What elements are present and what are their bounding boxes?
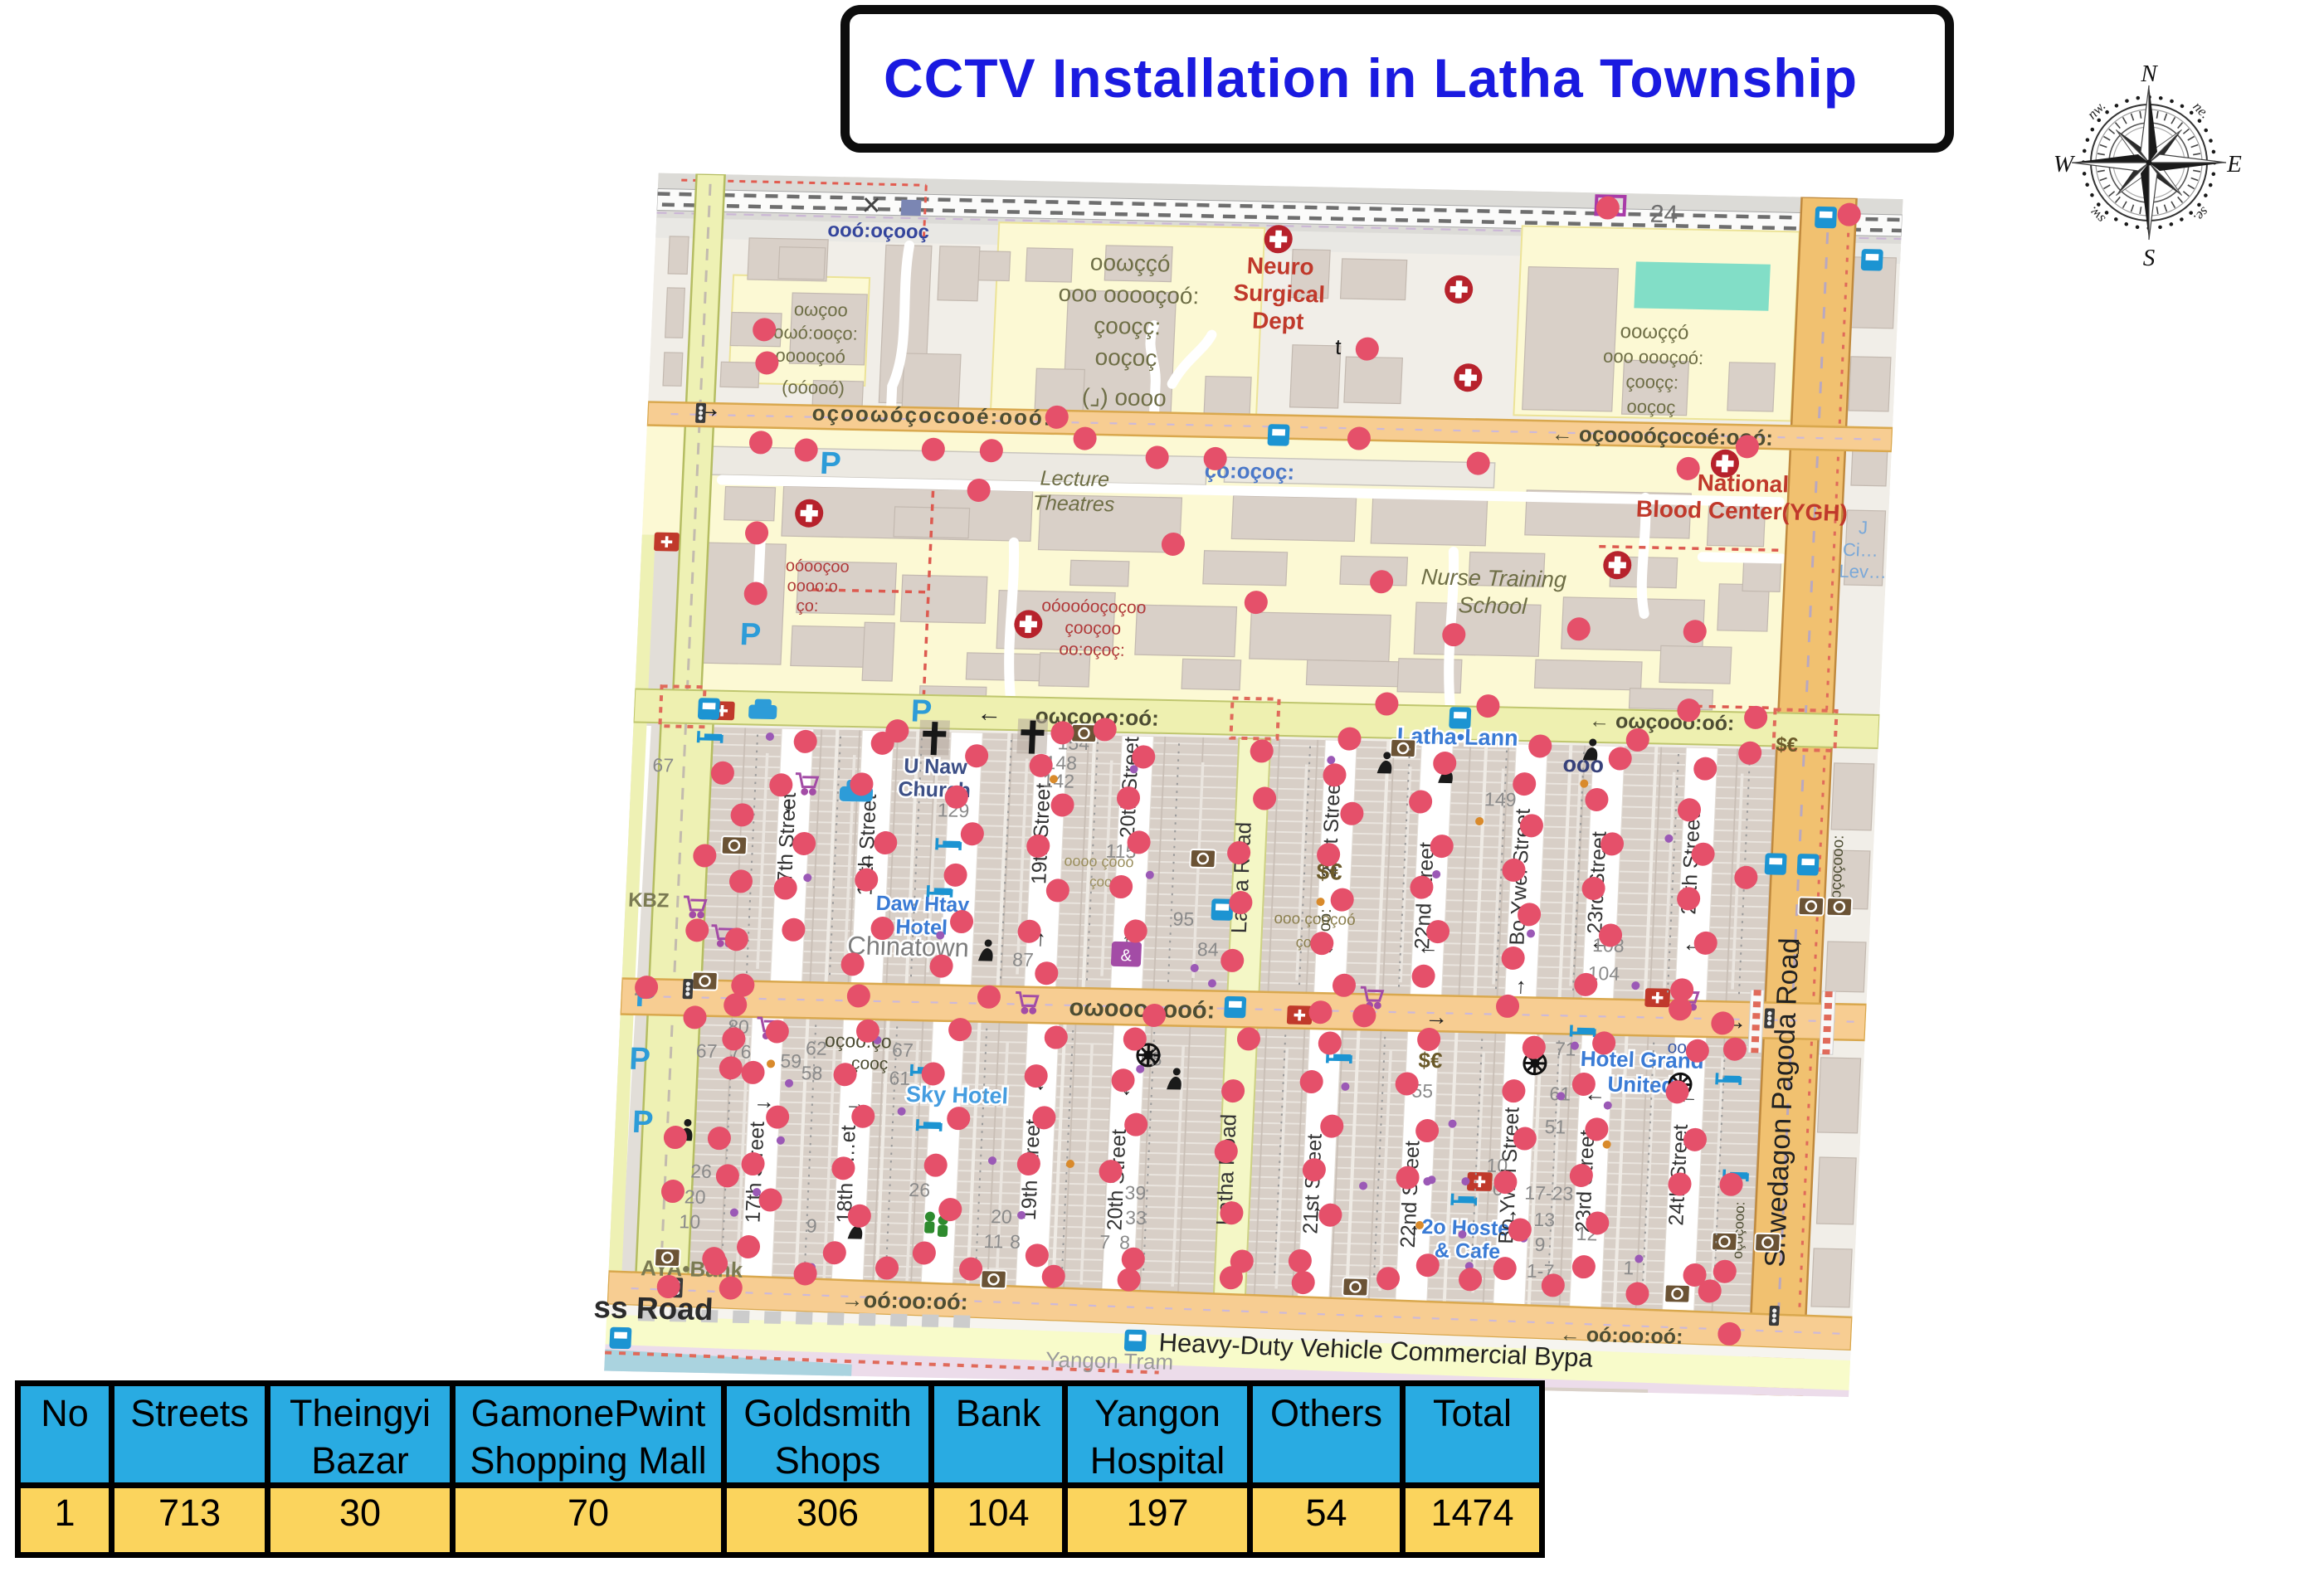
svg-text:39: 39	[1124, 1181, 1147, 1204]
svg-text:Theatres: Theatres	[1032, 491, 1115, 516]
svg-text:J: J	[1859, 517, 1868, 538]
svg-text:National: National	[1697, 470, 1790, 497]
svg-text:20: 20	[991, 1205, 1013, 1228]
svg-text:67: 67	[892, 1039, 914, 1061]
svg-text:çοοç: çοοç	[850, 1054, 888, 1073]
svg-text:8: 8	[1010, 1231, 1021, 1253]
svg-text:$€: $€	[1776, 733, 1799, 757]
svg-text:οωçοο: οωçοο	[793, 299, 848, 320]
svg-text:çοοçç:: çοοçç:	[1094, 313, 1162, 340]
svg-text:W: W	[2054, 151, 2076, 178]
svg-text:School: School	[1458, 592, 1528, 619]
svg-text:61: 61	[889, 1067, 911, 1089]
svg-text:33: 33	[1125, 1207, 1147, 1229]
svg-text:&: &	[1120, 947, 1133, 965]
svg-text:10: 10	[679, 1210, 701, 1233]
svg-text:S: S	[2143, 245, 2156, 271]
svg-text:Lecture: Lecture	[1040, 467, 1110, 492]
svg-text:οο:οçοç:: οο:οçοç:	[1059, 640, 1125, 660]
svg-text:United: United	[1607, 1072, 1675, 1098]
svg-text:οοο οοοçοó:: οοο οοοçοó:	[1603, 346, 1704, 369]
svg-text:19th Street: 19th Street	[1027, 782, 1055, 884]
svg-text:20: 20	[684, 1185, 706, 1208]
svg-text:62: 62	[806, 1037, 828, 1059]
svg-text:67: 67	[652, 754, 675, 776]
svg-text:çοοçç:: çοοçç:	[1625, 371, 1679, 392]
svg-text:95: 95	[1172, 908, 1195, 930]
svg-text:sw.: sw.	[2085, 203, 2108, 226]
svg-text:←: ←	[977, 699, 1002, 728]
svg-text:Neuro: Neuro	[1246, 253, 1314, 280]
svg-text:Sky Hotel: Sky Hotel	[905, 1082, 1008, 1109]
svg-text:11: 11	[983, 1230, 1004, 1252]
svg-text:58: 58	[801, 1062, 823, 1084]
svg-text:οοçοç: οοçοç	[1626, 396, 1676, 417]
svg-text:(οóοοó): (οóοοó)	[782, 377, 845, 399]
svg-text:13: 13	[1533, 1209, 1556, 1231]
svg-text:24: 24	[1649, 201, 1678, 229]
svg-text:→: →	[1425, 1004, 1449, 1030]
svg-text:→οó:οο:οó:: →οó:οο:οó:	[840, 1287, 968, 1314]
svg-text:26: 26	[909, 1179, 931, 1201]
svg-text:οóοοçοο: οóοοçοο	[785, 557, 850, 577]
svg-text:Surgical: Surgical	[1233, 280, 1326, 307]
svg-text:ss Road: ss Road	[593, 1289, 714, 1326]
svg-text:οοωççó: οοωççó	[1620, 320, 1689, 344]
svg-text:se.: se.	[2190, 204, 2212, 226]
svg-text:U Naw: U Naw	[904, 754, 968, 779]
svg-text:οοοοçοó: οοοοçοó	[775, 345, 846, 367]
svg-text:Ci…: Ci…	[1842, 539, 1878, 561]
svg-text:ne.: ne.	[2190, 99, 2213, 122]
svg-text:οωó:οοçο:: οωó:οοçο:	[773, 322, 859, 344]
svg-text:✕: ✕	[860, 192, 883, 221]
svg-text:7: 7	[1099, 1231, 1111, 1253]
svg-text:(⌟) οοοο: (⌟) οοοο	[1081, 383, 1167, 411]
svg-text:26: 26	[690, 1160, 713, 1182]
svg-text:οοο: οοο	[1562, 752, 1605, 777]
svg-text:οωοοο⁣οοοó:: οωοοο⁣οοοó:	[1069, 995, 1216, 1024]
svg-text:1: 1	[1623, 1257, 1635, 1278]
svg-text:Nurse Training: Nurse Training	[1420, 564, 1566, 592]
svg-text:17-23: 17-23	[1524, 1182, 1574, 1205]
svg-text:çοοçοο: çοοçοο	[1065, 618, 1122, 638]
svg-text:oçooωóçocοoé:ooó:: oçooωóçocοoé:ooó:	[811, 401, 1053, 431]
svg-text:οοçοç: οοçοç	[1094, 344, 1157, 372]
svg-text:E: E	[2226, 151, 2242, 178]
svg-text:çο:: çο:	[796, 596, 819, 616]
svg-text:N: N	[2140, 61, 2158, 87]
svg-text:↑: ↑	[1793, 933, 1805, 958]
svg-text:P: P	[739, 617, 762, 653]
svg-text:οóοοóοçοçοο: οóοοóοçοçοο	[1041, 596, 1147, 618]
svg-text:οοωççó: οοωççó	[1089, 250, 1171, 277]
svg-text:P: P	[819, 446, 841, 482]
svg-text:οοοο:ο: οοοο:ο	[787, 577, 838, 596]
svg-text:9: 9	[1534, 1234, 1546, 1255]
svg-text:149: 149	[1484, 788, 1518, 810]
svg-text:Lev…: Lev…	[1839, 561, 1888, 582]
svg-text:& Cafe: & Cafe	[1434, 1239, 1501, 1263]
svg-text:οοο çοοçοó: οοο çοοçοó	[1274, 910, 1356, 929]
svg-text:P: P	[629, 1042, 651, 1078]
svg-text:$€: $€	[1418, 1048, 1443, 1073]
svg-text:↑: ↑	[1515, 973, 1527, 998]
svg-text:67: 67	[695, 1039, 718, 1062]
svg-text:Dept: Dept	[1251, 308, 1304, 334]
svg-text:KBZ: KBZ	[628, 889, 670, 913]
svg-text:9: 9	[806, 1214, 817, 1236]
svg-text:Yangon Tram: Yangon Tram	[1045, 1347, 1173, 1375]
svg-text:nw.: nw.	[2084, 98, 2109, 123]
svg-text:οοο οοοοçοó:: οοο οοοοçοó:	[1058, 280, 1200, 309]
svg-text:59: 59	[780, 1050, 802, 1073]
svg-text:οοó:οçοοç: οοó:οçοοç	[827, 219, 930, 244]
svg-text:P: P	[631, 1105, 654, 1141]
svg-text:87: 87	[1012, 948, 1035, 971]
svg-text:51: 51	[1544, 1116, 1566, 1138]
svg-text:← οωçοοο:οó:: ← οωçοοο:οó:	[1589, 709, 1735, 736]
svg-text:Blood Center(YGH): Blood Center(YGH)	[1635, 496, 1848, 526]
svg-text:84: 84	[1196, 938, 1219, 961]
